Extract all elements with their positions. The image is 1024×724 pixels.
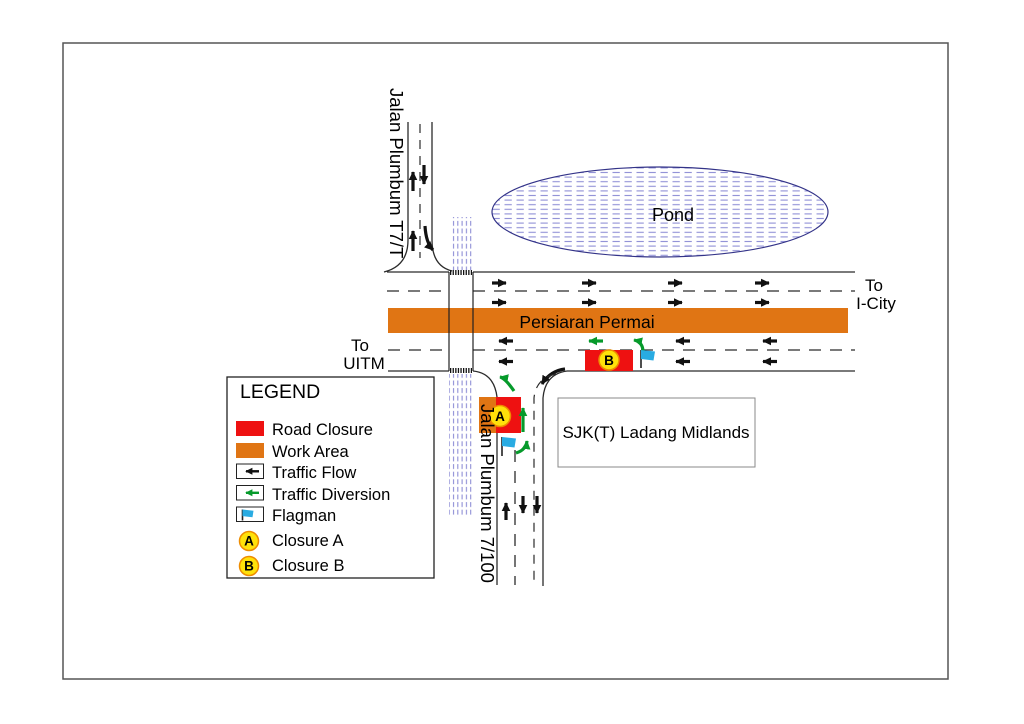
- legend-item-label: Traffic Flow: [272, 464, 356, 482]
- hatched-area-south: [449, 374, 473, 516]
- school-label: SJK(T) Ladang Midlands: [562, 423, 749, 442]
- legend-item-label: Flagman: [272, 507, 336, 525]
- legend-item-closure-a: A Closure A: [240, 532, 344, 551]
- legend-item-label: Work Area: [272, 443, 350, 461]
- closure-b-letter: B: [604, 353, 614, 368]
- pond: Pond: [492, 167, 828, 257]
- legend-item-closure-b: B Closure B: [240, 557, 345, 576]
- legend-item-label: Closure A: [272, 532, 344, 550]
- dest-east-line1: To: [865, 276, 883, 295]
- work-area-swatch: [236, 443, 264, 458]
- traffic-management-diagram: Pond Jalan Plumbum T7/T Persiaran Permai: [0, 0, 1024, 724]
- dest-east-line2: I-City: [856, 294, 896, 313]
- north-road-label: Jalan Plumbum T7/T: [386, 88, 407, 258]
- closure-b-badge-letter: B: [244, 559, 254, 574]
- dest-west-line2: UITM: [343, 354, 385, 373]
- main-road-label: Persiaran Permai: [519, 312, 654, 332]
- legend-title: LEGEND: [240, 381, 320, 403]
- legend-item-label: Closure B: [272, 557, 344, 575]
- road-closure-swatch: [236, 421, 264, 436]
- legend-item-label: Traffic Diversion: [272, 486, 390, 504]
- school-block: SJK(T) Ladang Midlands: [558, 398, 755, 467]
- legend-item-label: Road Closure: [272, 421, 373, 439]
- legend: LEGEND Road Closure Work Area Traffic Fl…: [227, 377, 434, 578]
- closure-a-badge-letter: A: [244, 534, 254, 549]
- hatched-area-north: [452, 217, 472, 270]
- dest-west-line1: To: [351, 336, 369, 355]
- south-road-label: Jalan Plumbum 7/100: [477, 404, 498, 583]
- pond-label: Pond: [652, 205, 694, 225]
